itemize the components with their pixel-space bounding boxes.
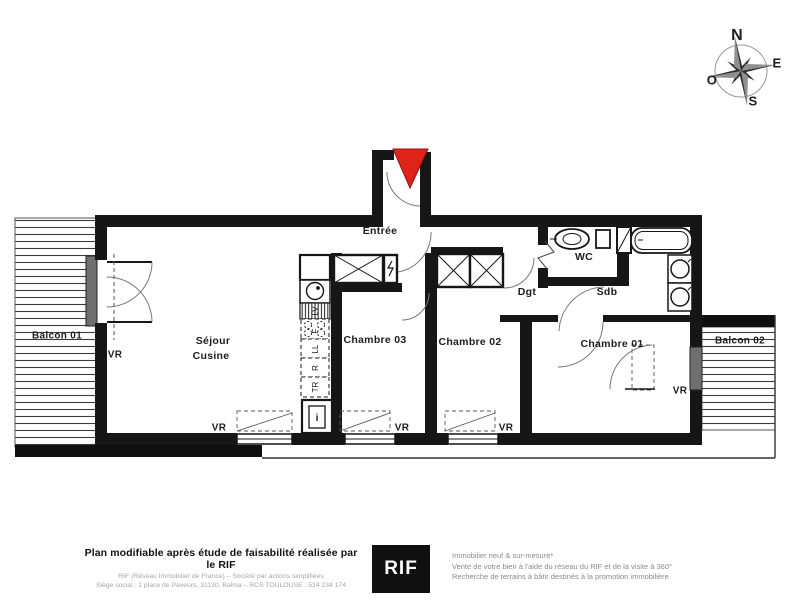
kitchen-cabinet — [300, 255, 330, 280]
toilet-icon — [550, 229, 610, 249]
svg-text:LV: LV — [311, 306, 320, 316]
compass-west-label: O — [707, 73, 717, 88]
wc-label: WC — [575, 251, 593, 263]
floor-plan-graphic: LV F LL R TR i — [0, 0, 800, 600]
kitchen-label: Cusine — [193, 350, 230, 362]
floor-plan-page: LV F LL R TR i — [0, 0, 800, 600]
windows — [237, 411, 498, 444]
svg-text:TR: TR — [311, 381, 320, 392]
balcony2-label: Balcon 02 — [715, 336, 765, 347]
living-room-label: Séjour — [196, 335, 230, 347]
bedroom2-door-arc — [504, 258, 534, 288]
bedroom3-window — [340, 411, 395, 444]
bedroom3-label: Chambre 03 — [343, 334, 406, 346]
svg-text:R: R — [311, 365, 320, 371]
bedroom3-door-arc — [402, 293, 429, 320]
bedroom2-label: Chambre 02 — [438, 336, 501, 348]
footer-services-block: Immobilier neuf & sur-mesure* Vente de v… — [452, 551, 702, 583]
footer-service-1: Immobilier neuf & sur-mesure* — [452, 551, 702, 562]
duct-icon — [617, 227, 631, 253]
footer-title: Plan modifiable après étude de faisabili… — [84, 547, 358, 571]
bedroom1-balcony-door — [610, 345, 702, 390]
vr-label-bedroom2-window: VR — [499, 423, 514, 434]
svg-text:F: F — [311, 328, 320, 333]
closets — [334, 254, 503, 287]
hallway-label: Dgt — [518, 286, 536, 298]
living-window — [237, 411, 292, 444]
kitchen-units — [300, 255, 332, 433]
vr-label-living-window: VR — [212, 423, 227, 434]
washbasin-icons — [668, 255, 692, 311]
bathtub-icon — [631, 228, 692, 253]
bedroom1-label: Chambre 01 — [580, 338, 643, 350]
compass-south-label: S — [749, 94, 758, 109]
svg-text:i: i — [316, 413, 319, 424]
footer-service-2: Vente de votre bien à l'aide du réseau d… — [452, 562, 702, 573]
bathroom-label: Sdb — [597, 286, 618, 298]
svg-text:LL: LL — [311, 344, 320, 353]
footer-company-line1: RIF (Réseau Immobilier de France) – Soci… — [84, 573, 358, 582]
footer-service-3: Recherche de terrains à bâtir destinés à… — [452, 572, 702, 583]
footer-company-line2: Siège social : 1 place de Paveurs, 31130… — [84, 582, 358, 591]
balcony1-door — [107, 254, 152, 340]
compass-north-label: N — [731, 27, 743, 45]
footer-left-block: Plan modifiable après étude de faisabili… — [84, 547, 358, 590]
rif-logo-text: RIF — [384, 558, 418, 580]
balcony1-label: Balcon 01 — [32, 331, 82, 342]
vr-label-bedroom3-window: VR — [395, 423, 410, 434]
wc-door-break — [538, 241, 554, 270]
rif-logo: RIF — [372, 545, 430, 593]
bedroom2-window — [445, 411, 498, 444]
compass-east-label: E — [773, 56, 782, 71]
entrance-label: Entrée — [363, 225, 397, 237]
vr-label-bedroom1-balcony: VR — [673, 386, 688, 397]
vr-label-balcony1: VR — [108, 350, 123, 361]
